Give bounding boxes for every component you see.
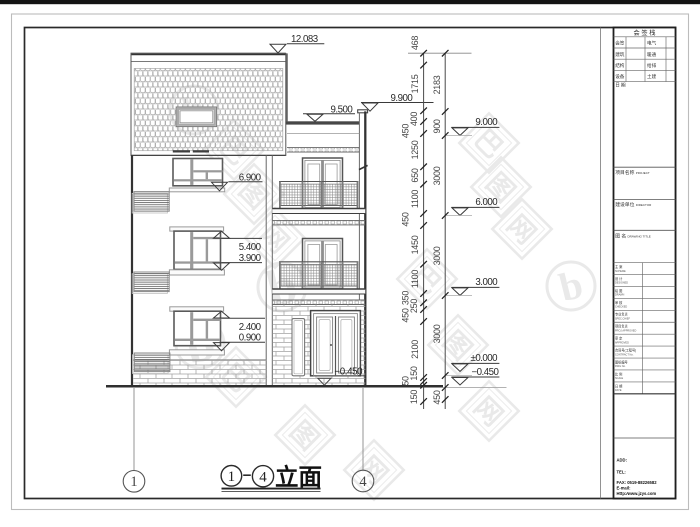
- svg-text:给排: 给排: [647, 62, 657, 69]
- svg-text:E-mail:: E-mail:: [617, 485, 631, 490]
- svg-text:1100: 1100: [410, 270, 420, 288]
- svg-text:1: 1: [130, 474, 137, 490]
- svg-text:468: 468: [410, 36, 420, 50]
- svg-text:4: 4: [259, 470, 267, 486]
- svg-text:会签: 会签: [615, 40, 625, 47]
- svg-text:150: 150: [409, 390, 419, 404]
- svg-text:会 签 栈: 会 签 栈: [633, 29, 655, 37]
- svg-text:450: 450: [401, 124, 411, 138]
- svg-text:暖通: 暖通: [647, 51, 657, 58]
- svg-text:ADD:: ADD:: [617, 458, 627, 463]
- svg-text:FAX: 0519-88226582: FAX: 0519-88226582: [617, 480, 658, 485]
- svg-text:4: 4: [359, 474, 367, 490]
- svg-text:b: b: [555, 261, 587, 310]
- svg-text:DRAWN: DRAWN: [615, 294, 625, 297]
- svg-text:建设单位 DIRECTOR: 建设单位 DIRECTOR: [615, 201, 652, 208]
- svg-text:9.900: 9.900: [391, 93, 414, 104]
- svg-text:450: 450: [401, 308, 411, 322]
- svg-text:DWG No.: DWG No.: [615, 365, 626, 368]
- svg-text:3000: 3000: [432, 324, 442, 343]
- svg-text:5.400: 5.400: [239, 242, 262, 253]
- svg-text:日 期: 日 期: [615, 383, 622, 388]
- svg-text:TEL:: TEL:: [617, 470, 626, 475]
- svg-text:150: 150: [409, 366, 419, 380]
- svg-text:250: 250: [409, 299, 419, 313]
- svg-text:450: 450: [401, 212, 411, 226]
- svg-text:PROJ.APPROVED: PROJ.APPROVED: [615, 329, 636, 332]
- svg-text:DESIGNED: DESIGNED: [615, 282, 628, 285]
- svg-text:SCALE: SCALE: [615, 377, 624, 380]
- svg-text:SCHEME: SCHEME: [615, 270, 626, 273]
- svg-text:9.000: 9.000: [475, 117, 498, 128]
- svg-text:3000: 3000: [432, 166, 442, 185]
- svg-text:图 名 DRAWING TITLE: 图 名 DRAWING TITLE: [615, 233, 651, 240]
- svg-text:专业负责: 专业负责: [615, 312, 628, 317]
- svg-text:400: 400: [409, 112, 419, 126]
- svg-text:主 案: 主 案: [615, 264, 623, 269]
- svg-text:合同号(工程号): 合同号(工程号): [615, 348, 636, 353]
- svg-text:绘 图: 绘 图: [615, 288, 622, 293]
- svg-text:2.400: 2.400: [239, 322, 262, 333]
- svg-text:设备: 设备: [615, 73, 625, 80]
- svg-text:±0.000: ±0.000: [471, 353, 499, 364]
- svg-text:1715: 1715: [410, 74, 420, 93]
- svg-text:CONTRACT No.: CONTRACT No.: [615, 353, 634, 356]
- svg-text:12.083: 12.083: [291, 34, 318, 45]
- svg-text:2183: 2183: [432, 75, 442, 94]
- svg-text:−0.450: −0.450: [472, 367, 500, 378]
- svg-text:图纸编号: 图纸编号: [615, 359, 628, 364]
- svg-text:结构: 结构: [615, 62, 625, 69]
- svg-text:1: 1: [228, 469, 236, 485]
- svg-text:3.000: 3.000: [475, 277, 498, 288]
- svg-text:6.900: 6.900: [239, 172, 262, 183]
- svg-text:900: 900: [432, 119, 442, 133]
- svg-text:项目负责: 项目负责: [615, 324, 628, 329]
- svg-text:1250: 1250: [410, 140, 420, 159]
- svg-text:APPROVED: APPROVED: [615, 341, 629, 344]
- svg-text:电气: 电气: [647, 40, 657, 46]
- svg-text:650: 650: [410, 168, 420, 182]
- svg-text:Http:∕∕www.jzys.com: Http:∕∕www.jzys.com: [617, 491, 657, 496]
- svg-text:审 定: 审 定: [615, 336, 623, 341]
- svg-text:审 核: 审 核: [615, 300, 623, 305]
- svg-text:立面: 立面: [275, 463, 322, 491]
- svg-text:土建: 土建: [647, 73, 657, 80]
- svg-text:CHECKED: CHECKED: [615, 306, 627, 309]
- svg-text:SPEC.CHIEF: SPEC.CHIEF: [615, 318, 630, 321]
- svg-text:2100: 2100: [410, 340, 420, 359]
- svg-text:−0.450: −0.450: [334, 366, 363, 377]
- svg-text:450: 450: [432, 390, 442, 404]
- svg-text:项目名称 PROJECT: 项目名称 PROJECT: [615, 169, 650, 176]
- svg-text:设 计: 设 计: [615, 276, 623, 281]
- svg-text:6.000: 6.000: [475, 197, 498, 208]
- svg-text:比 例: 比 例: [615, 371, 622, 376]
- svg-text:DATE: DATE: [615, 389, 622, 392]
- svg-text:1450: 1450: [410, 235, 420, 254]
- svg-text:50: 50: [401, 376, 411, 386]
- svg-text:建筑: 建筑: [615, 51, 625, 58]
- svg-text:9.500: 9.500: [331, 104, 354, 115]
- svg-text:1100: 1100: [410, 190, 420, 208]
- svg-text:3000: 3000: [432, 246, 442, 265]
